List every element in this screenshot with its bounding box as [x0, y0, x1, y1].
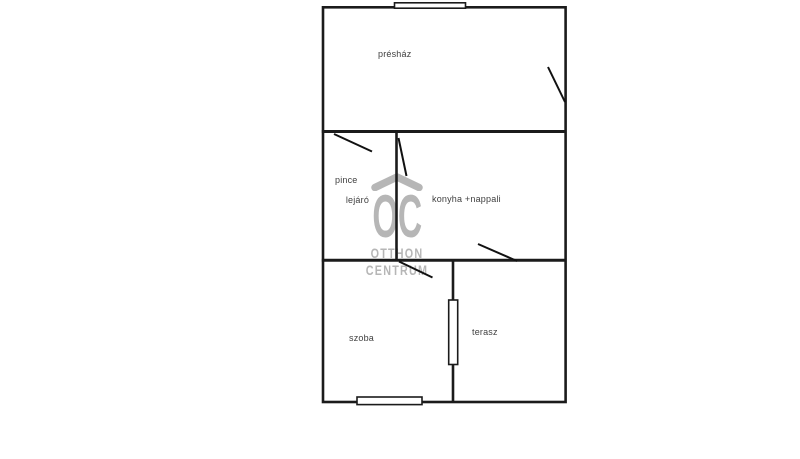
- door-swing-pince-lejaro: [334, 134, 372, 152]
- room-label-pince-line2: lejáró: [346, 195, 369, 205]
- room-label-pince-lejaro: pince lejáró: [335, 175, 369, 205]
- door-swing-szoba: [399, 262, 433, 278]
- room-label-pince-line1: pince: [335, 175, 358, 185]
- window-top-preshaz: [395, 3, 466, 8]
- room-label-konyha-nappali: konyha +nappali: [432, 194, 501, 204]
- room-label-terasz: terasz: [472, 327, 498, 337]
- door-swing-konyha: [399, 138, 407, 176]
- floorplan-image: OC OTTHON CENTRUM présház pince lejáró k…: [0, 0, 800, 459]
- window-bottom-szoba: [357, 397, 422, 405]
- room-label-szoba: szoba: [349, 333, 374, 343]
- window-szoba-terasz: [449, 300, 458, 365]
- door-swing-konyha-terasz: [478, 244, 517, 261]
- door-swing-preshaz: [548, 67, 565, 102]
- floorplan-linework: [0, 0, 800, 459]
- room-label-preshaz: présház: [378, 49, 411, 59]
